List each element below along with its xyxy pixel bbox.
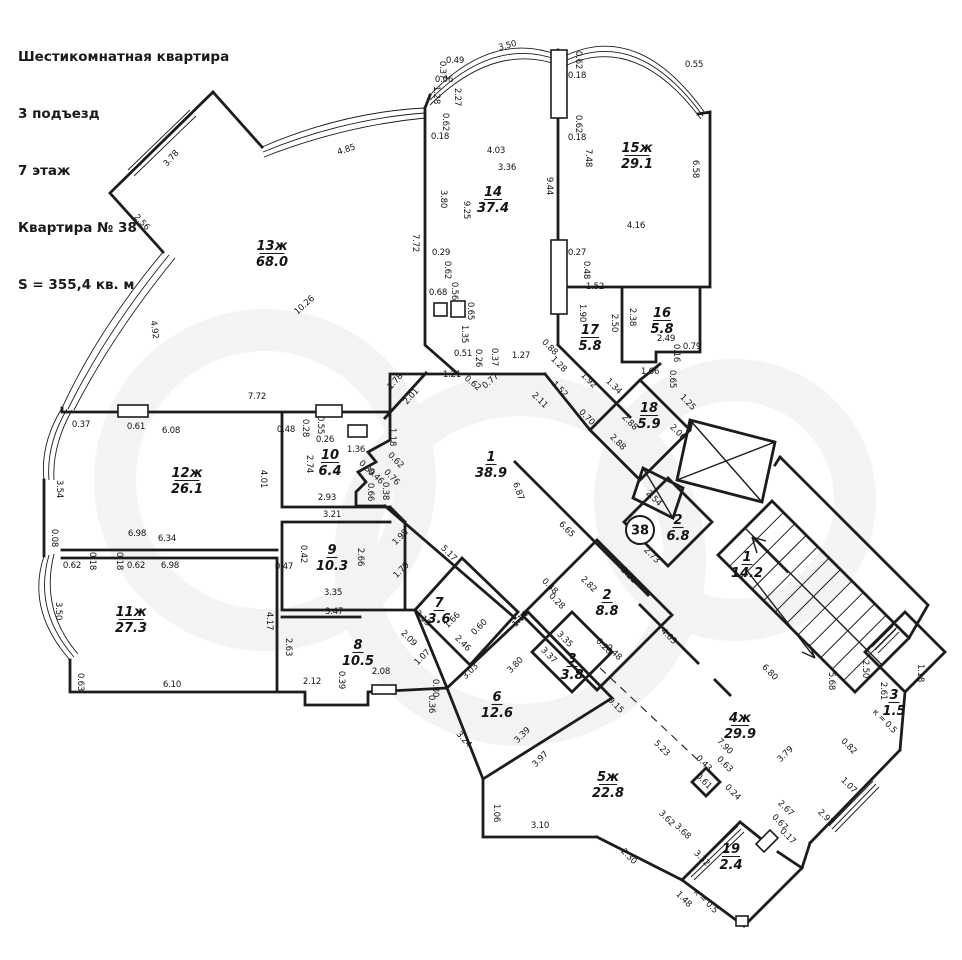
dimension-label: 3.68 xyxy=(672,822,692,842)
badge-number: 38 xyxy=(631,524,649,539)
dimension-label: 3.97 xyxy=(531,750,551,770)
dimension-label: 9.25 xyxy=(461,201,471,219)
dimension-label: 5.68 xyxy=(826,672,836,690)
dimension-label: 3.21 xyxy=(323,510,341,520)
dimension-label: 0.06 xyxy=(435,75,453,85)
dimension-label: 4.17 xyxy=(264,612,274,630)
dimension-label: 3.78 xyxy=(162,149,182,169)
dimension-label: 3.35 xyxy=(554,630,574,650)
dimension-label: 3.36 xyxy=(498,163,516,173)
dimension-label: 6.34 xyxy=(158,534,176,544)
dimension-label: 0.37 xyxy=(489,348,499,366)
room-number: 12ж xyxy=(171,466,203,481)
room-number: 14 xyxy=(484,185,502,200)
dimension-label: 1.28 xyxy=(431,86,441,104)
dimension-label: 0.16 xyxy=(671,344,681,362)
dimension-label: 0.42 xyxy=(298,545,308,563)
room-number: 13ж xyxy=(256,239,288,254)
dimension-label: 0.56 xyxy=(449,282,459,300)
dimension-label: 4.85 xyxy=(336,143,357,158)
dimension-label: 0.18 xyxy=(568,133,586,143)
dimension-label: 0.62 xyxy=(440,113,450,131)
dimension-label: 0.60 xyxy=(470,618,490,638)
dimension-label: 0.18 xyxy=(568,71,586,81)
room-number: 10 xyxy=(321,448,339,463)
dimension-label: 0.79 xyxy=(683,342,701,352)
dimension-label: 3.79 xyxy=(776,745,796,765)
dimension-label: 4.01 xyxy=(258,470,268,488)
dimension-label: 2.12 xyxy=(303,677,321,687)
room-number: 6 xyxy=(492,690,501,705)
apartment-number-badge: 38 xyxy=(626,516,654,544)
dimension-label: 3.80 xyxy=(438,190,448,208)
dimension-label: 0.28 xyxy=(300,419,310,437)
dimension-label: 0.61 xyxy=(127,422,145,432)
dimension-label: 3.03 xyxy=(461,662,481,682)
dimension-label: 5.17 xyxy=(438,544,458,564)
room-number: 7 xyxy=(434,596,444,611)
dimension-label: 1.66 xyxy=(641,367,659,377)
room-area: 2.4 xyxy=(719,858,742,873)
dimension-label: 2.08 xyxy=(372,667,390,677)
dimension-label: 7.48 xyxy=(583,149,593,167)
dimension-label: 0.61 xyxy=(693,772,713,792)
room-area: 68.0 xyxy=(256,255,288,270)
dimension-label: 0.26 xyxy=(473,349,483,367)
dimension-label: 6.58 xyxy=(690,160,700,178)
room-area: 5.8 xyxy=(578,339,601,354)
dimension-label: 3.50 xyxy=(497,39,517,53)
dimension-label: 2.61 xyxy=(878,682,888,700)
dimension-label: 0.82 xyxy=(838,737,858,757)
room-area: 5.9 xyxy=(637,417,660,432)
room-number: 8 xyxy=(353,638,362,653)
dimension-label: 0.62 xyxy=(127,561,145,571)
dimension-label: 3.50 xyxy=(53,602,63,620)
dimension-label: 1.27 xyxy=(512,351,530,361)
room-area: 10.3 xyxy=(316,559,348,574)
room-area: 38.9 xyxy=(475,466,507,481)
dimension-label: 0.38 xyxy=(380,482,390,500)
dimension-label: 6.10 xyxy=(163,680,181,690)
dimension-label: к = 0.5 xyxy=(691,887,719,915)
dimension-label: 3.54 xyxy=(54,480,64,498)
room-number: 2 xyxy=(602,588,611,603)
dimension-label: 0.48 xyxy=(277,425,295,435)
dimension-label: 2.38 xyxy=(627,308,637,326)
dimension-label: 10.26 xyxy=(293,294,317,317)
dimension-label: 0.49 xyxy=(446,56,464,66)
dimension-label: 2.82 xyxy=(578,575,598,595)
dimension-label: 6.65 xyxy=(556,520,576,540)
room-area: 29.1 xyxy=(621,157,653,172)
dimension-label: 1.90 xyxy=(577,304,587,322)
room-area: 3.8 xyxy=(560,668,583,683)
dimension-label: 0.51 xyxy=(454,349,472,359)
dimension-label: 0.18 xyxy=(431,132,449,142)
dimension-label: 1.52 xyxy=(586,282,604,292)
dimension-label: 2.49 xyxy=(657,334,675,344)
dimension-label: 2.50 xyxy=(609,314,619,332)
dimension-label: 1.28 xyxy=(548,355,568,375)
dimension-label: 1.06 xyxy=(491,804,501,822)
dimension-label: 4.92 xyxy=(148,320,160,340)
dimension-label: 3.62 xyxy=(656,809,676,829)
dimension-label: 0.36 xyxy=(426,695,436,713)
room-area: 27.3 xyxy=(115,621,147,636)
dimension-label: 6.98 xyxy=(161,561,179,571)
dimension-label: 2.66 xyxy=(355,548,365,566)
dimension-label: 2.97 xyxy=(815,808,835,828)
dimension-label: 2.63 xyxy=(283,638,293,656)
dimension-label: 1.35 xyxy=(459,325,469,343)
dimension-label: 0.48 xyxy=(603,643,623,663)
room-number: 15ж xyxy=(621,141,653,156)
dimension-label: 0.28 xyxy=(546,592,566,612)
dimension-label: 2.74 xyxy=(304,455,314,473)
dimension-label: 2.50 xyxy=(860,660,870,678)
dimension-label: 0.27 xyxy=(568,248,586,258)
dimension-label: 1.07 xyxy=(413,648,433,668)
dimension-label: 0.24 xyxy=(722,783,742,803)
room-area: 10.5 xyxy=(342,654,374,669)
dimension-label: 0.17 xyxy=(777,827,797,847)
dimension-label: 1.18 xyxy=(387,428,397,446)
room-number: 5ж xyxy=(597,770,620,785)
room-number: 1 xyxy=(742,550,751,565)
dimension-label: 1.36 xyxy=(347,445,365,455)
dimension-label: 0.29 xyxy=(432,248,450,258)
floor-plan-drawing: 13ж68.01437.415ж29.1165.8175.8185.9138.9… xyxy=(0,0,962,960)
room-area: 6.8 xyxy=(666,529,689,544)
dimension-label: 0.18 xyxy=(87,552,97,570)
dimension-label: 0.48 xyxy=(581,261,591,279)
dimension-label: 0.62 xyxy=(573,51,583,69)
dimension-label: 0.62 xyxy=(573,115,583,133)
dimension-label: 2.27 xyxy=(452,88,462,106)
room-number: 16 xyxy=(653,306,671,321)
room-area: 26.1 xyxy=(171,482,203,497)
dimension-label: 0.39 xyxy=(336,671,346,689)
room-number: 3 xyxy=(889,688,898,703)
dimension-label: 2.56 xyxy=(131,213,151,233)
dimension-label: 1.18 xyxy=(915,664,925,682)
dimension-label: 0.55 xyxy=(685,60,703,70)
room-area: 12.6 xyxy=(481,706,513,721)
dimension-label: 4.03 xyxy=(487,146,505,156)
dimension-label: 1.21 xyxy=(443,370,461,380)
dimension-label: 3.80 xyxy=(506,656,526,676)
dimension-label: 0.65 xyxy=(667,370,677,388)
room-number: 17 xyxy=(581,323,600,338)
dimension-label: 3.10 xyxy=(531,821,549,831)
floorplan-sheet: Шестикомнатная квартира 3 подъезд 7 этаж… xyxy=(0,0,962,960)
room-number: 1 xyxy=(486,450,495,465)
dimension-label: 0.26 xyxy=(316,435,334,445)
dimension-label: 1.07 xyxy=(838,776,858,796)
dimension-label: 4.16 xyxy=(627,221,645,231)
room-area: 29.9 xyxy=(724,727,756,742)
dimension-label: 0.47 xyxy=(275,562,293,572)
room-number: 18 xyxy=(640,401,658,416)
dimension-label: 6.08 xyxy=(162,426,180,436)
dimension-label: 1.48 xyxy=(673,890,693,910)
room-number: 3 xyxy=(567,652,576,667)
room-area: 14.2 xyxy=(731,566,763,581)
dimension-label: 6.80 xyxy=(759,663,779,683)
dimension-label: 2.30 xyxy=(618,847,638,867)
dimension-label: 3.47 xyxy=(325,607,343,617)
dimension-label: 6.98 xyxy=(128,529,146,539)
room-area: 8.8 xyxy=(595,604,618,619)
dimension-label: 0.65 xyxy=(465,302,475,320)
dimension-label: 7.72 xyxy=(410,234,420,252)
dimension-label: 7.72 xyxy=(248,392,266,402)
dimension-label: 0.63 xyxy=(75,673,85,691)
room-number: 2 xyxy=(673,513,682,528)
dimension-label: 3.35 xyxy=(324,588,342,598)
dimension-label: 5.23 xyxy=(651,739,671,759)
dimension-label: 0.55 xyxy=(315,416,325,434)
dimension-label: 0.37 xyxy=(72,420,90,430)
dimension-label: 0.08 xyxy=(49,529,59,547)
dimension-label: 2.93 xyxy=(318,493,336,503)
dimension-label: 0.62 xyxy=(63,561,81,571)
room-number: 9 xyxy=(327,543,336,558)
room-area: 6.4 xyxy=(318,464,341,479)
dimension-label: 0.68 xyxy=(429,288,447,298)
dimension-label: 9.44 xyxy=(544,177,554,195)
room-area: 37.4 xyxy=(477,201,509,216)
room-number: 11ж xyxy=(115,605,147,620)
room-area: 22.8 xyxy=(592,786,624,801)
dimension-label: 6.87 xyxy=(510,481,526,502)
dimension-label: 0.62 xyxy=(442,261,452,279)
dimension-label: 0.63 xyxy=(714,755,734,775)
room-number: 19 xyxy=(722,842,740,857)
dimension-label: 0.18 xyxy=(114,552,124,570)
room-number: 4ж xyxy=(728,711,752,726)
dimension-label: 0.66 xyxy=(365,483,375,501)
